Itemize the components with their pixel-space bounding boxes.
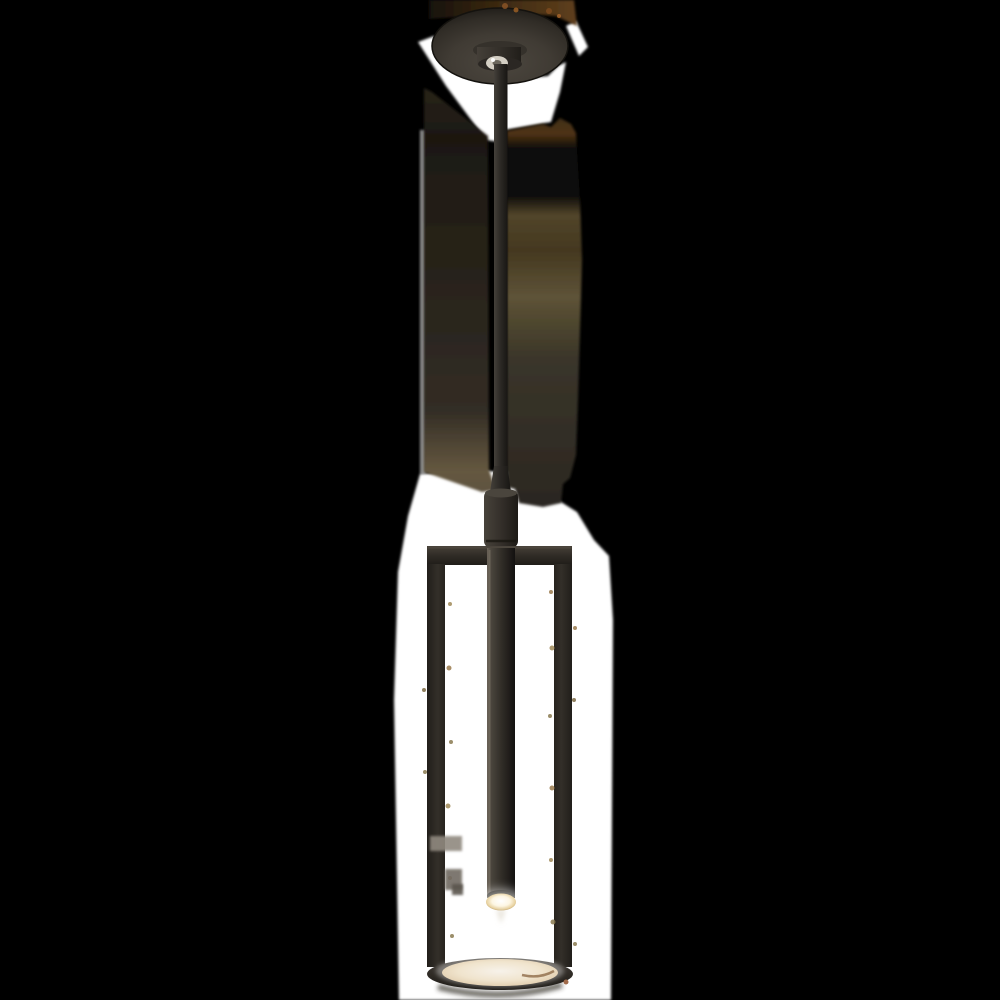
speckle-artifact (447, 666, 452, 671)
speckle-artifact (502, 3, 508, 9)
speckle-artifact (557, 14, 561, 18)
speckle-artifact (548, 714, 552, 718)
coupler-body (484, 490, 518, 548)
pendant-light-photo (0, 0, 1000, 1000)
speckle-artifact (551, 920, 556, 925)
speckle-artifact (514, 8, 519, 13)
speckle-artifact (546, 8, 552, 14)
cage-right-rail (554, 564, 572, 967)
speckle-artifact (422, 688, 426, 692)
copper-glint (564, 980, 569, 985)
canopy-nipple-glint (491, 58, 495, 62)
speckle-artifact (573, 942, 577, 946)
speckle-artifact (573, 626, 577, 630)
product-photo-stage (0, 0, 1000, 1000)
coupler-cap (485, 489, 517, 498)
stem-coupler (484, 489, 518, 549)
stem-tube (487, 548, 515, 898)
gray-block-artifact (452, 884, 463, 895)
speckle-artifact (423, 770, 427, 774)
murk-left-band (424, 88, 496, 492)
speckle-artifact (446, 804, 451, 809)
speckle-artifact (448, 602, 452, 606)
speckle-artifact (549, 858, 553, 862)
murk-right-band (507, 118, 582, 507)
speckle-artifact (449, 740, 453, 744)
speckle-artifact (572, 698, 576, 702)
gray-block-artifact (430, 836, 462, 851)
led-lens (486, 894, 516, 911)
speckle-artifact (450, 934, 454, 938)
speckle-artifact (550, 786, 555, 791)
speckle-artifact (549, 590, 553, 594)
glass-diffuser (442, 959, 558, 986)
speckle-artifact (550, 646, 555, 651)
cage-left-rail (427, 564, 445, 967)
drop-rod (494, 64, 508, 492)
